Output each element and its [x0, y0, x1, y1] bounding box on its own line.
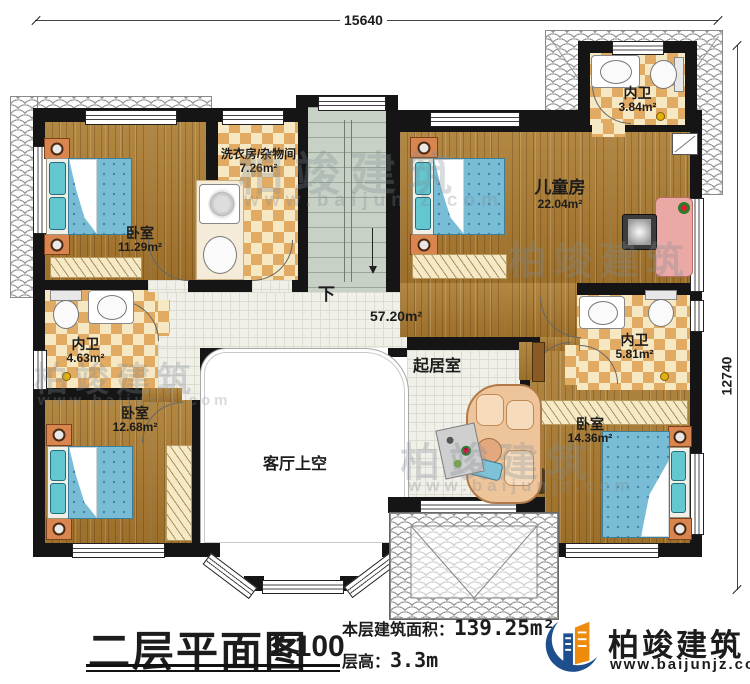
- kids-computer-monitor: [622, 214, 657, 250]
- plan-height-value: 3.3m: [390, 648, 438, 672]
- room-name: 洗衣房/杂物间: [196, 148, 321, 162]
- brand-logo-icon: [543, 614, 601, 676]
- room-label-kids: 儿童房 22.04m²: [505, 178, 615, 211]
- toilet-bath-left: [50, 290, 80, 328]
- nightstand: [46, 518, 72, 540]
- room-name: 卧室: [90, 405, 180, 421]
- corner-cabinet: [672, 133, 698, 155]
- pillow: [415, 162, 431, 195]
- window-stairs-north: [318, 96, 386, 111]
- plan-scale: 1:100: [268, 630, 345, 664]
- sink-bath-left: [88, 290, 134, 324]
- bed-kids: [433, 158, 505, 235]
- nightstand: [410, 234, 438, 255]
- title-underline-2: [86, 670, 340, 672]
- bed-bedroom1: [68, 158, 132, 235]
- plan-height-label: 层高：: [342, 654, 390, 671]
- balcony-roof: [390, 513, 558, 619]
- stair-direction-arrow: [372, 228, 373, 268]
- room-area: 12.68m²: [90, 421, 180, 435]
- room-label-bedroom1: 卧室 11.29m²: [95, 225, 185, 255]
- room-area: 4.63m²: [48, 352, 123, 366]
- room-area: 11.29m²: [95, 241, 185, 255]
- bay-window-bottom: [262, 580, 344, 594]
- pillow: [49, 197, 66, 230]
- door-gap-laundry: [252, 280, 292, 292]
- door-leaf-bedroom3: [532, 342, 545, 382]
- door-gap-bedroom2: [142, 388, 182, 402]
- sink-bath-right: [579, 296, 625, 329]
- room-name: 卧室: [545, 416, 635, 432]
- plan-area-label: 本层建筑面积：: [342, 622, 454, 639]
- window-bedroom1-west: [33, 146, 47, 234]
- window-laundry-north: [222, 110, 284, 125]
- wardrobe-bedroom2: [166, 445, 192, 541]
- window-bath-top-north: [612, 41, 664, 55]
- floor-plan-canvas: 卧室 11.29m² 洗衣房/杂物间 7.26m² 儿童房 22.04m² 内卫…: [0, 0, 750, 684]
- nightstand: [44, 234, 70, 255]
- washing-machine: [199, 184, 240, 224]
- room-name: 儿童房: [505, 178, 615, 198]
- brand-website: www.baijunjz.com: [610, 656, 750, 673]
- desk-flower: [678, 202, 690, 214]
- door-gap-bath-left: [158, 300, 170, 336]
- plan-height-row: 层高：3.3m: [342, 648, 438, 672]
- wardrobe-kids: [412, 254, 507, 279]
- room-area: 22.04m²: [505, 198, 615, 212]
- bed-bedroom2: [68, 446, 133, 519]
- sink-bath-top: [591, 55, 640, 88]
- room-area: 14.36m²: [545, 432, 635, 446]
- window-bedroom3-south: [565, 543, 659, 558]
- dimension-right-value: 12740: [718, 353, 734, 400]
- door-knob: [62, 372, 71, 381]
- room-name: 卧室: [95, 225, 185, 241]
- pillow: [50, 483, 66, 514]
- nightstand: [46, 424, 72, 446]
- room-area: 7.26m²: [196, 162, 321, 176]
- dimension-top-value: 15640: [340, 12, 387, 28]
- room-label-bath-left: 内卫 4.63m²: [48, 336, 123, 366]
- dimension-line-right: [737, 45, 738, 590]
- door-gap-bedroom1: [148, 280, 188, 292]
- nightstand: [668, 426, 692, 447]
- stair-arrowhead: [369, 266, 377, 274]
- nightstand: [410, 137, 438, 158]
- pillow: [415, 197, 431, 230]
- room-label-bath-top: 内卫 3.84m²: [600, 85, 675, 115]
- door-gap-bath-top: [592, 123, 625, 137]
- window-bedroom1-north: [85, 110, 177, 125]
- window-kids-north: [430, 112, 520, 127]
- pillow: [671, 483, 686, 513]
- stair-handrail: [344, 120, 352, 282]
- wardrobe-bedroom1: [50, 257, 142, 278]
- window-bedroom2-south: [72, 543, 165, 558]
- room-name: 内卫: [600, 85, 675, 101]
- title-underline-1: [86, 664, 340, 667]
- plan-area-value: 139.25m²: [454, 616, 555, 640]
- room-bedroom3-door-gap: [519, 342, 532, 380]
- window-bath-right-east: [690, 300, 704, 332]
- plan-area-row: 本层建筑面积：139.25m²: [342, 616, 555, 640]
- door-knob: [660, 372, 669, 381]
- room-name: 内卫: [597, 332, 672, 348]
- toilet-bath-right: [645, 290, 675, 326]
- window-bath-left-west: [33, 350, 47, 390]
- room-label-bedroom2: 卧室 12.68m²: [90, 405, 180, 435]
- void-over-living: [200, 348, 409, 546]
- pillow: [49, 162, 66, 195]
- room-area: 5.81m²: [597, 348, 672, 362]
- bed-bedroom3: [602, 431, 670, 538]
- room-area: 3.84m²: [600, 101, 675, 115]
- void-name: 客厅上空: [263, 450, 327, 474]
- room-name: 内卫: [48, 336, 123, 352]
- window-bedroom3-east: [690, 453, 704, 535]
- room-label-laundry: 洗衣房/杂物间 7.26m²: [196, 148, 321, 176]
- pillow: [671, 451, 686, 481]
- nightstand: [44, 138, 70, 159]
- pillow: [50, 450, 66, 481]
- room-label-bath-right: 内卫 5.81m²: [597, 332, 672, 362]
- living-area-value: 57.20m²: [370, 308, 422, 324]
- laundry-sink: [203, 236, 237, 274]
- living-name: 起居室: [413, 352, 461, 376]
- nightstand: [668, 518, 692, 540]
- stairs-down-label: 下: [318, 280, 335, 305]
- room-label-bedroom3: 卧室 14.36m²: [545, 416, 635, 446]
